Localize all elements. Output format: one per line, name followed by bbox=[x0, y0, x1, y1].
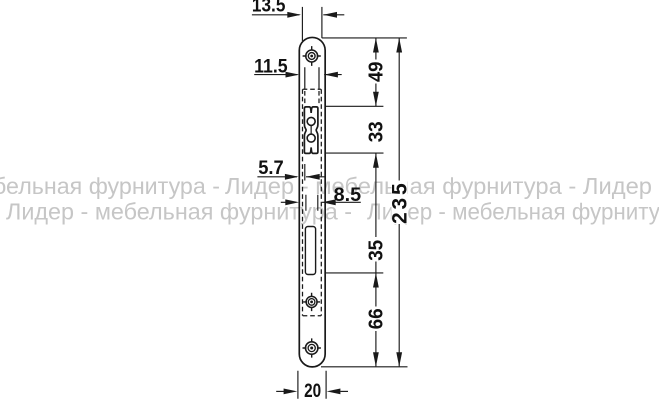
svg-text:33: 33 bbox=[366, 121, 388, 142]
svg-text:235: 235 bbox=[388, 180, 411, 223]
svg-text:13.5: 13.5 bbox=[252, 0, 286, 17]
svg-text:66: 66 bbox=[366, 308, 388, 329]
svg-text:35: 35 bbox=[366, 240, 388, 261]
svg-text:бельная фурнитура -: бельная фурнитура - bbox=[0, 173, 220, 199]
svg-text:5.7: 5.7 bbox=[258, 158, 284, 179]
svg-text:20: 20 bbox=[304, 381, 321, 400]
svg-text:49: 49 bbox=[366, 62, 388, 83]
